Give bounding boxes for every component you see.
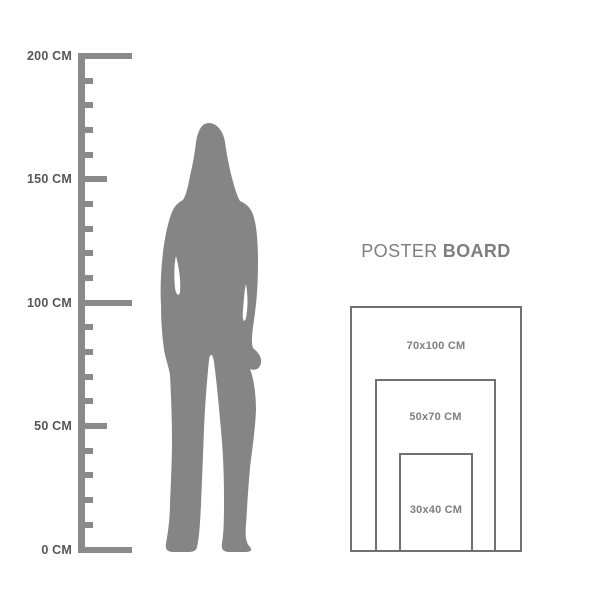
ruler-tick-50cm (78, 423, 107, 429)
silhouette-body (161, 123, 262, 552)
ruler-label-50cm: 50 CM (6, 418, 72, 434)
ruler-tick-150cm (78, 176, 107, 182)
size-label-30x40: 30x40 CM (401, 503, 471, 517)
size-box-30x40: 30x40 CM (399, 453, 473, 552)
ruler-tick-0cm (78, 547, 132, 553)
size-guide-diagram: 200 CM150 CM100 CM50 CM0 CM POSTERBOARD … (0, 0, 600, 600)
ruler-tick-20cm (78, 497, 93, 503)
ruler-tick-110cm (78, 275, 93, 281)
ruler-tick-120cm (78, 250, 93, 256)
ruler-label-150cm: 150 CM (6, 171, 72, 187)
ruler-tick-160cm (78, 152, 93, 158)
ruler-tick-170cm (78, 127, 93, 133)
ruler-tick-90cm (78, 324, 93, 330)
height-ruler: 200 CM150 CM100 CM50 CM0 CM (0, 0, 140, 600)
ruler-tick-80cm (78, 349, 93, 355)
ruler-tick-100cm (78, 300, 132, 306)
title-bold-part: BOARD (443, 241, 511, 261)
ruler-tick-30cm (78, 472, 93, 478)
size-label-70x100: 70x100 CM (352, 339, 520, 353)
ruler-tick-10cm (78, 522, 93, 528)
ruler-tick-40cm (78, 448, 93, 454)
ruler-label-0cm: 0 CM (6, 542, 72, 558)
ruler-tick-60cm (78, 398, 93, 404)
ruler-tick-140cm (78, 201, 93, 207)
ruler-tick-180cm (78, 102, 93, 108)
ruler-label-100cm: 100 CM (6, 295, 72, 311)
size-label-50x70: 50x70 CM (377, 410, 494, 424)
ruler-label-200cm: 200 CM (6, 48, 72, 64)
woman-silhouette (150, 120, 270, 556)
poster-board-title: POSTERBOARD (350, 241, 522, 262)
ruler-tick-190cm (78, 78, 93, 84)
ruler-tick-70cm (78, 374, 93, 380)
title-regular-part: POSTER (361, 241, 437, 261)
ruler-tick-130cm (78, 226, 93, 232)
ruler-tick-200cm (78, 53, 132, 59)
